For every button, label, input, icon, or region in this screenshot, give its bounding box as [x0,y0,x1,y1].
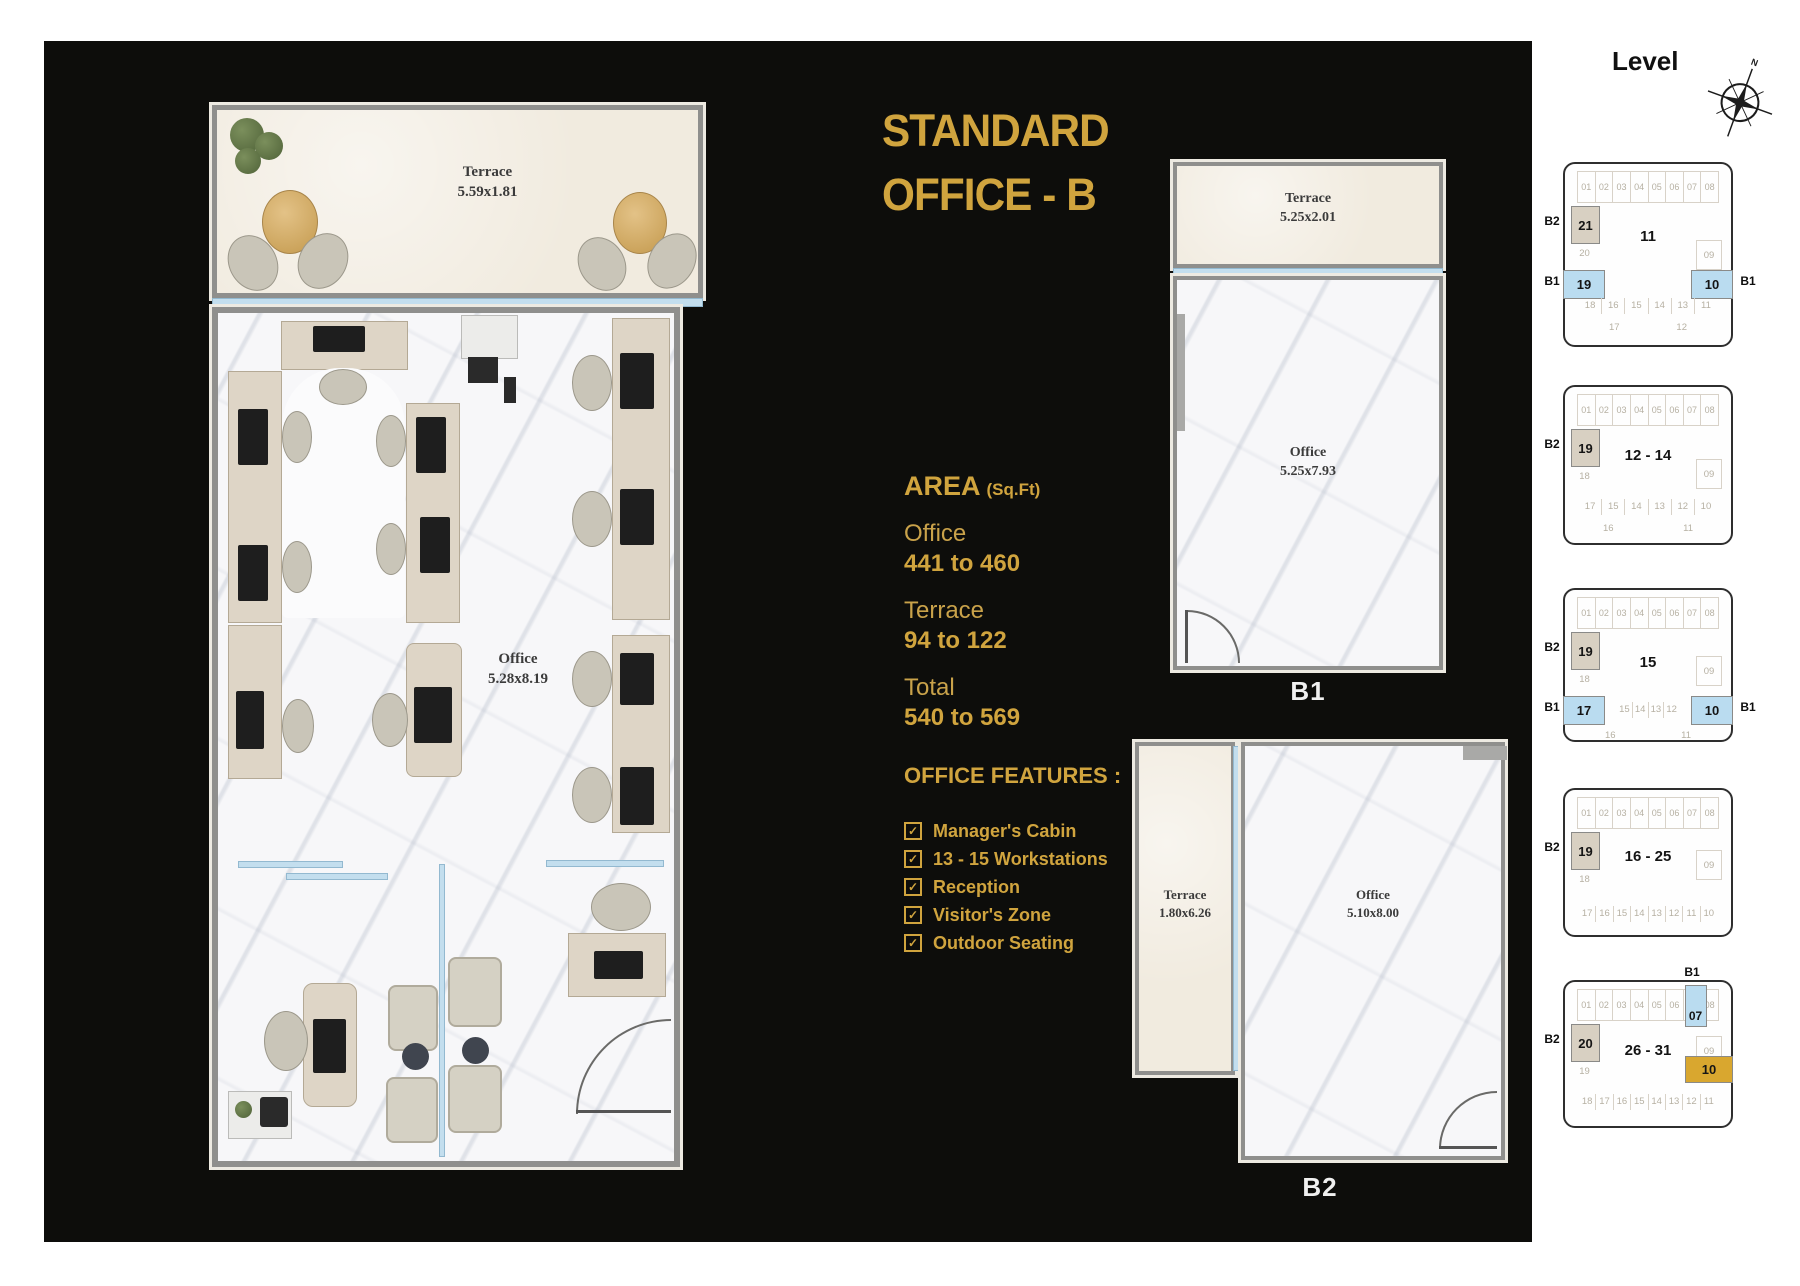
armchair [386,1077,438,1143]
office-chair [282,699,314,753]
laptop-icon [313,1019,346,1073]
unit-cell: 14 [1630,906,1647,922]
area-value: 94 to 122 [904,626,1164,656]
unit-cell: 05 [1648,798,1666,828]
b1-tag: B1 [1680,965,1704,979]
b1-terrace-dim-label: Terrace 5.25x2.01 [1177,190,1439,228]
glass-partition [1173,268,1443,276]
unit-cell: 08 [1700,172,1718,202]
bottom-unit-row: 1817161514131211 [1579,1094,1717,1110]
checkbox-checked-icon: ✓ [904,822,922,840]
unit-cell: 20 [1571,248,1598,259]
unit-cell: 01 [1578,990,1595,1020]
unit-cell: 02 [1595,172,1613,202]
reception-unit [504,377,516,403]
unit-cell: 13 [1648,702,1664,718]
unit-cell: 16 [1613,1094,1630,1110]
building-outline: 0102030405060708191812 - 140917151413121… [1563,385,1733,545]
unit-cell: 02 [1595,598,1613,628]
office-dims: 5.10x8.00 [1245,904,1501,922]
main-office: Office 5.28x8.19 [212,307,680,1167]
feature-item: ✓Visitor's Zone [904,901,1108,929]
unit-cell: 18 [1571,674,1598,685]
top-unit-row: 0102030405060708 [1577,394,1719,426]
laptop-icon [594,951,643,979]
bottom-unit-row: 1716151413121110 [1579,906,1717,922]
b1-tag: B1 [1736,700,1760,714]
office-label: Office [1245,886,1501,904]
unit-cell: 11 [1682,906,1699,922]
unit-cell: 17 [1595,1094,1612,1110]
unit-cell: 01 [1578,798,1595,828]
unit-cell: 10 [1694,499,1717,515]
b2-office: Office 5.10x8.00 [1241,742,1505,1160]
unit-cell: 07 [1683,395,1701,425]
glass-partition [286,873,388,880]
unit-cell: 18 [1579,298,1601,314]
unit-cell: 12 [1663,702,1679,718]
door-leaf [1439,1146,1497,1149]
unit-cell: 05 [1648,598,1666,628]
office-dim-label: Office 5.28x8.19 [458,649,578,690]
office-chair [591,883,651,931]
unit-cell: 07 [1683,598,1701,628]
compass-north-label: N [1750,57,1760,69]
armchair [448,1065,502,1133]
unit-cell: 03 [1612,598,1630,628]
building-outline: 0102030405060708191816 - 250917161514131… [1563,788,1733,937]
laptop-icon [416,417,446,473]
unit-cell: 04 [1630,172,1648,202]
wall-notch [1463,746,1507,760]
plant-icon [235,1101,252,1118]
unit-cell: 18 [1571,874,1598,885]
laptop-icon [414,687,452,743]
unit-cell: 15 [1601,499,1624,515]
laptop-icon [313,326,365,352]
unit-highlight-b1: 17 [1563,696,1605,725]
unit-cell: 05 [1648,172,1666,202]
unit-cell: 04 [1630,395,1648,425]
door-arc [1439,1091,1497,1149]
unit-cell: 05 [1648,990,1666,1020]
laptop-icon [620,353,654,409]
unit-cell: 06 [1665,990,1683,1020]
unit-cell: 06 [1665,798,1683,828]
unit-cell: 08 [1700,798,1718,828]
black-panel: Terrace 5.59x1.81 [44,41,1532,1242]
laptop-icon [238,409,268,465]
unit-cell: 02 [1595,395,1613,425]
unit-highlight-b1: 19 [1563,270,1605,299]
plan-title-line2: OFFICE - B [882,163,1192,227]
unit-cell: 08 [1700,598,1718,628]
unit-cell: 13 [1671,298,1694,314]
laptop-icon [420,517,450,573]
office-label: Office [458,649,578,669]
unit-cell: 05 [1648,395,1666,425]
unit-highlight-gold: 10 [1685,1056,1733,1083]
b1-tag: B1 [1540,700,1564,714]
feature-item: ✓13 - 15 Workstations [904,845,1108,873]
unit-cell: 12 [1676,320,1687,336]
unit-cell: 16 [1605,728,1616,744]
office-chair [282,411,312,463]
plan-title-line1: STANDARD [882,99,1192,163]
feature-label: Manager's Cabin [933,821,1076,842]
b2-office-dim-label: Office 5.10x8.00 [1245,886,1501,921]
office-chair [264,1011,308,1071]
unit-cell: 16 [1595,906,1612,922]
office-label: Office [1177,444,1439,463]
door-leaf [576,1110,671,1113]
unit-cell: 03 [1612,798,1630,828]
area-value: 540 to 569 [904,703,1164,733]
pouf [402,1043,429,1070]
unit-cell: 06 [1665,598,1683,628]
area-value: 441 to 460 [904,549,1164,579]
unit-cell: 09 [1696,240,1722,270]
wall-pilaster [1177,314,1185,431]
unit-cell: 09 [1696,656,1722,686]
unit-cell: 15 [1624,298,1647,314]
feature-label: Outdoor Seating [933,933,1074,954]
unit-cell: 13 [1648,499,1671,515]
b2-tag: B2 [1540,640,1564,654]
unit-cell: 11 [1683,521,1693,537]
bottom-unit-row: 181615141311 [1579,298,1717,314]
terrace-label: Terrace [1139,886,1231,904]
office-chair [376,523,406,575]
unit-highlight-b1: 10 [1691,270,1733,299]
unit-cell: 17 [1609,320,1620,336]
b1-caption: B1 [1173,676,1443,707]
unit-cell: 14 [1624,499,1647,515]
top-unit-row: 0102030405060708 [1577,597,1719,629]
unit-cell: 16 [1603,521,1614,537]
unit-cell: 15 [1613,906,1630,922]
plan-b2: Terrace 1.80x6.26 Office 5.10x8.00 B2 [1135,742,1505,1202]
unit-cell: 13 [1648,906,1665,922]
features-heading: OFFICE FEATURES : [904,763,1121,789]
office-chair [572,651,612,707]
pouf [462,1037,489,1064]
unit-cell: 04 [1630,990,1648,1020]
unit-highlight-b1: 07 [1685,985,1707,1027]
unit-cell: 12 [1665,906,1682,922]
office-chair [319,369,367,405]
b1-tag: B1 [1540,274,1564,288]
level-heading: Level [1612,46,1679,77]
unit-cell: 01 [1578,395,1595,425]
unit-cell: 02 [1595,798,1613,828]
glass-partition [546,860,664,867]
terrace-dims: 5.59x1.81 [337,182,638,202]
checkbox-checked-icon: ✓ [904,878,922,896]
area-row-office: Office 441 to 460 [904,519,1164,579]
area-row-terrace: Terrace 94 to 122 [904,596,1164,656]
unit-cell: 17 [1579,499,1601,515]
area-label: Terrace [904,596,1164,626]
unit-cell: 11 [1681,728,1691,744]
unit-cell: 16 [1601,298,1624,314]
unit-cell: 14 [1648,298,1671,314]
feature-label: Visitor's Zone [933,905,1051,926]
unit-cell: 15 [1617,702,1632,718]
laptop-icon [238,545,268,601]
unit-cell: 11 [1694,298,1717,314]
b1-office: Office 5.25x7.93 [1173,276,1443,670]
glass-partition [212,298,703,307]
building-outline: 0102030405060708201926 - 310907101817161… [1563,980,1733,1128]
feature-label: 13 - 15 Workstations [933,849,1108,870]
bottom-unit-row: 1712 [1579,320,1717,336]
b2-tag: B2 [1540,1032,1564,1046]
area-table: Office 441 to 460 Terrace 94 to 122 Tota… [904,519,1164,750]
unit-cell: 12 [1682,1094,1699,1110]
unit-cell: 12 [1671,499,1694,515]
unit-cell: 19 [1571,1066,1598,1077]
plan-title: STANDARD OFFICE - B [882,99,1192,227]
unit-cell: 02 [1595,990,1613,1020]
feature-item: ✓Reception [904,873,1108,901]
armchair [388,985,438,1051]
armchair [448,957,502,1027]
unit-cell: 01 [1578,598,1595,628]
unit-cell: 18 [1579,1094,1595,1110]
bottom-unit-row: 1611 [1579,521,1717,537]
unit-cell: 09 [1696,850,1722,880]
plan-b1: Terrace 5.25x2.01 Office 5.25x7.93 B1 [1173,162,1443,707]
building-outline: 0102030405060708212011091910181615141311… [1563,162,1733,347]
area-label: Total [904,673,1164,703]
reception-printer [468,357,498,383]
unit-cell: 06 [1665,395,1683,425]
unit-cell: 07 [1683,172,1701,202]
unit-cell: 04 [1630,798,1648,828]
unit-cell: 08 [1700,395,1718,425]
main-floor-plan: Terrace 5.59x1.81 [212,105,712,1235]
b2-tag: B2 [1540,437,1564,451]
bottom-unit-row: 171514131210 [1579,499,1717,515]
area-heading: AREA(Sq.Ft) [904,471,1040,502]
building-outline: 0102030405060708191815091710151413121611 [1563,588,1733,742]
office-chair [572,491,612,547]
area-unit-text: (Sq.Ft) [987,480,1041,499]
b1-terrace: Terrace 5.25x2.01 [1173,162,1443,268]
unit-cell: 10 [1700,906,1717,922]
laptop-icon [620,489,654,545]
unit-cell: 15 [1630,1094,1647,1110]
brochure-page: Terrace 5.59x1.81 [0,0,1800,1286]
unit-cell: 03 [1612,395,1630,425]
laptop-icon [620,653,654,705]
unit-cell: 18 [1571,471,1598,482]
features-list: ✓Manager's Cabin✓13 - 15 Workstations✓Re… [904,817,1108,957]
terrace-dims: 1.80x6.26 [1139,904,1231,922]
area-row-total: Total 540 to 569 [904,673,1164,733]
top-unit-row: 0102030405060708 [1577,797,1719,829]
bottom-unit-row: 1611 [1579,728,1717,744]
laptop-icon [236,691,264,749]
door-arc [1187,610,1240,663]
office-chair [282,541,312,593]
unit-cell: 11 [1700,1094,1717,1110]
unit-cell: 17 [1579,906,1595,922]
unit-cell: 03 [1612,172,1630,202]
unit-cell: 03 [1612,990,1630,1020]
terrace-label: Terrace [1177,190,1439,209]
unit-cell: 14 [1632,702,1648,718]
office-chair [572,767,612,823]
checkbox-checked-icon: ✓ [904,906,922,924]
feature-item: ✓Outdoor Seating [904,929,1108,957]
plant-icon [235,148,261,174]
glass-partition [439,864,445,1157]
door-arc [576,1019,671,1114]
terrace-label: Terrace [337,162,638,182]
unit-cell: 13 [1665,1094,1682,1110]
unit-cell: 01 [1578,172,1595,202]
checkbox-checked-icon: ✓ [904,850,922,868]
terrace-dims: 5.25x2.01 [1177,209,1439,228]
reception-counter [461,315,518,359]
printer [260,1097,288,1127]
checkbox-checked-icon: ✓ [904,934,922,952]
unit-cell: 14 [1648,1094,1665,1110]
unit-cell: 04 [1630,598,1648,628]
office-chair [372,693,408,747]
office-chair [376,415,406,467]
office-dims: 5.28x8.19 [458,669,578,689]
b1-office-dim-label: Office 5.25x7.93 [1177,444,1439,482]
b2-tag: B2 [1540,214,1564,228]
b2-terrace: Terrace 1.80x6.26 [1135,742,1235,1075]
office-chair [572,355,612,411]
b2-tag: B2 [1540,840,1564,854]
feature-item: ✓Manager's Cabin [904,817,1108,845]
office-dims: 5.25x7.93 [1177,463,1439,482]
feature-label: Reception [933,877,1020,898]
terrace-dim-label: Terrace 5.59x1.81 [337,162,638,203]
b1-tag: B1 [1736,274,1760,288]
area-heading-text: AREA [904,471,981,501]
b2-terrace-dim-label: Terrace 1.80x6.26 [1139,886,1231,921]
area-label: Office [904,519,1164,549]
door-leaf [1185,610,1188,663]
glass-partition [238,861,343,868]
b2-caption: B2 [1135,1172,1505,1203]
unit-cell: 09 [1696,459,1722,489]
unit-highlight-b1: 10 [1691,696,1733,725]
unit-cell: 07 [1683,798,1701,828]
bottom-unit-row: 15141312 [1617,702,1679,718]
top-unit-row: 0102030405060708 [1577,171,1719,203]
main-terrace: Terrace 5.59x1.81 [212,105,703,298]
compass-icon: N [1694,52,1786,144]
unit-cell: 06 [1665,172,1683,202]
laptop-icon [620,767,654,825]
